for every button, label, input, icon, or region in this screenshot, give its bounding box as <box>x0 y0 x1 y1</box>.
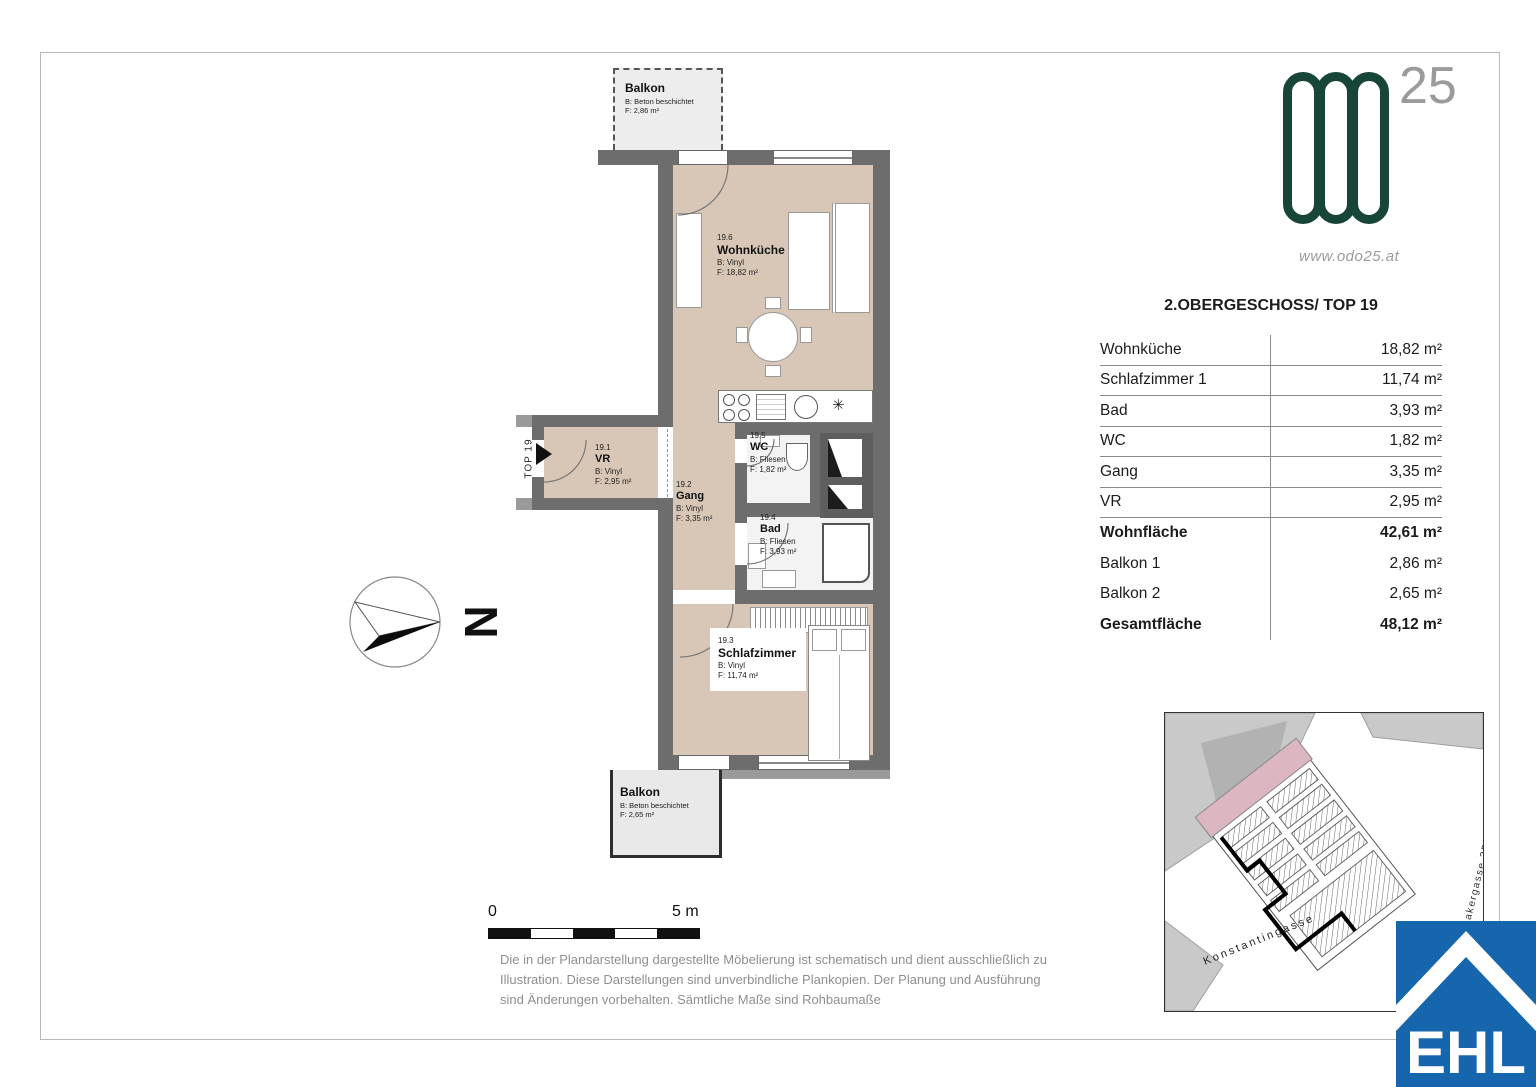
bad-door-opening <box>735 523 747 565</box>
scale-segment <box>615 929 657 938</box>
room-name: Schlafzimmer <box>718 646 796 661</box>
area-table-rows: Wohnküche18,82 m² Schlafzimmer 111,74 m²… <box>1100 335 1442 640</box>
fridge-symbol: ✳ <box>832 396 845 414</box>
room-finish: B: Vinyl <box>676 504 712 514</box>
room-label-wohnkueche: 19.6 Wohnküche B: Vinyl F: 18,82 m² <box>717 233 785 278</box>
row-value: 3,35 m² <box>1389 463 1442 481</box>
ehl-logo-graphic: EHL <box>1396 921 1536 1087</box>
balcony-bottom-name: Balkon <box>620 785 689 801</box>
room-number: 19.5 <box>750 431 786 441</box>
shower <box>822 523 870 583</box>
chair <box>800 327 812 343</box>
table-row: VR2,95 m² <box>1100 488 1442 519</box>
table-row: Bad3,93 m² <box>1100 396 1442 427</box>
room-finish: B: Vinyl <box>595 467 631 477</box>
room-name: VR <box>595 453 631 467</box>
row-value: 11,74 m² <box>1382 371 1442 389</box>
pillow <box>812 629 837 651</box>
balcony-top-area: F: 2,86 m² <box>625 106 694 116</box>
logo-website: www.odo25.at <box>1299 248 1399 265</box>
scale-bar-segments <box>488 928 700 939</box>
disclaimer-line: sind Änderungen vorbehalten. Sämtliche M… <box>500 990 1140 1010</box>
row-value: 42,61 m² <box>1380 524 1442 542</box>
window-top <box>773 150 853 165</box>
stove-burner <box>723 409 735 421</box>
room-area: F: 3,93 m² <box>760 547 796 557</box>
oven <box>756 394 786 420</box>
balcony-bottom-area: F: 2,65 m² <box>620 810 689 820</box>
disclaimer-line: Illustration. Diese Darstellungen sind u… <box>500 970 1140 990</box>
logo-numeral: 25 <box>1399 56 1457 116</box>
row-label: Balkon 1 <box>1100 555 1160 573</box>
wall-segment <box>658 498 673 770</box>
balcony-door-top <box>678 150 728 165</box>
cabinet <box>788 212 830 310</box>
stove-burner <box>738 409 750 421</box>
room-finish: B: Vinyl <box>718 661 796 671</box>
room-label-wc: 19.5 WC B: Fliesen F: 1,82 m² <box>750 431 786 475</box>
room-label-bad: 19.4 Bad B: Fliesen F: 3,93 m² <box>760 513 796 557</box>
room-number: 19.2 <box>676 480 712 490</box>
room-name: Wohnküche <box>717 243 785 258</box>
disclaimer-text: Die in der Plandarstellung dargestellte … <box>500 950 1140 1010</box>
pillow <box>841 629 866 651</box>
balcony-door-bottom <box>678 755 730 770</box>
room-finish: B: Vinyl <box>717 258 785 268</box>
logo-ring-icon <box>1349 72 1389 224</box>
ehl-text: EHL <box>1406 1019 1526 1086</box>
wall-segment <box>873 150 890 770</box>
room-area: F: 3,35 m² <box>676 514 712 524</box>
wall-segment <box>658 150 673 427</box>
wall-segment <box>532 498 658 510</box>
area-table: 2.OBERGESCHOSS/ TOP 19 Wohnküche18,82 m²… <box>1100 297 1442 640</box>
chair <box>736 327 748 343</box>
wall-segment <box>735 590 873 604</box>
city-block <box>1361 713 1483 749</box>
wall-segment <box>735 423 747 439</box>
row-value: 18,82 m² <box>1381 341 1442 359</box>
row-value: 2,95 m² <box>1389 493 1442 511</box>
scale-segment <box>531 929 573 938</box>
row-label: VR <box>1100 493 1122 511</box>
row-label: Wohnfläche <box>1100 524 1188 542</box>
room-finish: B: Fliesen <box>760 537 796 547</box>
wall-segment <box>735 565 747 593</box>
odo25-logo: 25 www.odo25.at <box>1283 62 1463 272</box>
room-finish: B: Fliesen <box>750 455 786 465</box>
balcony-bottom-finish: B: Beton beschichtet <box>620 801 689 811</box>
balcony-slab-edge <box>722 770 890 779</box>
balcony-top-label: Balkon B: Beton beschichtet F: 2,86 m² <box>625 81 694 116</box>
room-name: Gang <box>676 490 712 504</box>
row-label: WC <box>1100 432 1126 450</box>
wardrobe <box>676 213 702 308</box>
window-glass-line <box>759 762 849 764</box>
area-table-title: 2.OBERGESCHOSS/ TOP 19 <box>1100 297 1442 315</box>
window-glass-line <box>774 157 852 159</box>
row-value: 1,82 m² <box>1389 432 1442 450</box>
north-letter: N <box>455 605 507 638</box>
room-number: 19.1 <box>595 443 631 453</box>
room-number: 19.3 <box>718 636 796 646</box>
toilet <box>786 443 808 471</box>
row-value: 2,65 m² <box>1389 585 1442 603</box>
row-label: Wohnküche <box>1100 341 1182 359</box>
table-divider <box>1270 335 1271 640</box>
floorplan-page: Balkon B: Beton beschichtet F: 2,86 m² <box>0 0 1536 1087</box>
row-label: Gesamtfläche <box>1100 616 1202 634</box>
disclaimer-line: Die in der Plandarstellung dargestellte … <box>500 950 1140 970</box>
scale-start-label: 0 <box>488 903 497 921</box>
room-name: Bad <box>760 523 796 537</box>
scale-segment <box>489 929 531 938</box>
balcony-top-name: Balkon <box>625 81 694 97</box>
wall-segment <box>532 415 658 427</box>
table-row-total: Wohnfläche42,61 m² <box>1100 518 1442 549</box>
row-label: Bad <box>1100 402 1128 420</box>
table-row: Balkon 22,65 m² <box>1100 579 1442 610</box>
row-value: 48,12 m² <box>1380 616 1442 634</box>
entrance-arrow-icon <box>536 443 552 465</box>
bed-split-line <box>839 655 840 759</box>
row-label: Balkon 2 <box>1100 585 1160 603</box>
room-label-vr: 19.1 VR B: Vinyl F: 2,95 m² <box>595 443 631 487</box>
table-row-grand-total: Gesamtfläche48,12 m² <box>1100 610 1442 641</box>
chair <box>765 365 781 377</box>
room-area: F: 18,82 m² <box>717 268 785 278</box>
scale-end-label: 5 m <box>672 903 699 921</box>
room-area: F: 2,95 m² <box>595 477 631 487</box>
table-row: Wohnküche18,82 m² <box>1100 335 1442 366</box>
washing-machine <box>762 570 796 588</box>
room-number: 19.4 <box>760 513 796 523</box>
ehl-logo: EHL <box>1396 921 1536 1087</box>
room-area: F: 1,82 m² <box>750 465 786 475</box>
sofa <box>832 203 870 313</box>
scale-segment <box>657 929 699 938</box>
entrance-top19-label: TOP 19 <box>524 424 535 494</box>
room-divider-dashed <box>667 429 668 497</box>
balcony-top-finish: B: Beton beschichtet <box>625 97 694 107</box>
room-label-schlafzimmer: 19.3 Schlafzimmer B: Vinyl F: 11,74 m² <box>710 628 806 691</box>
city-block <box>1165 921 1223 1011</box>
scale-segment <box>573 929 615 938</box>
room-number: 19.6 <box>717 233 785 243</box>
room-label-gang: 19.2 Gang B: Vinyl F: 3,35 m² <box>676 480 712 524</box>
stove-burner <box>723 394 735 406</box>
row-value: 2,86 m² <box>1389 555 1442 573</box>
kitchen-sink <box>794 395 818 419</box>
scale-bar: 0 5 m <box>488 903 748 943</box>
balcony-bottom-label: Balkon B: Beton beschichtet F: 2,65 m² <box>620 785 689 820</box>
wc-door-opening <box>735 439 747 463</box>
room-area: F: 11,74 m² <box>718 671 796 681</box>
floor-plan: Balkon B: Beton beschichtet F: 2,86 m² <box>510 65 908 867</box>
wall-stub <box>516 498 532 510</box>
row-label: Gang <box>1100 463 1138 481</box>
north-arrow: N <box>345 570 515 685</box>
table-row: WC1,82 m² <box>1100 427 1442 458</box>
row-value: 3,93 m² <box>1389 402 1442 420</box>
table-row: Gang3,35 m² <box>1100 457 1442 488</box>
table-row: Balkon 12,86 m² <box>1100 549 1442 580</box>
stove-burner <box>738 394 750 406</box>
dining-table <box>748 312 798 362</box>
chair <box>765 297 781 309</box>
row-label: Schlafzimmer 1 <box>1100 371 1207 389</box>
room-name: WC <box>750 441 786 455</box>
table-row: Schlafzimmer 111,74 m² <box>1100 366 1442 397</box>
